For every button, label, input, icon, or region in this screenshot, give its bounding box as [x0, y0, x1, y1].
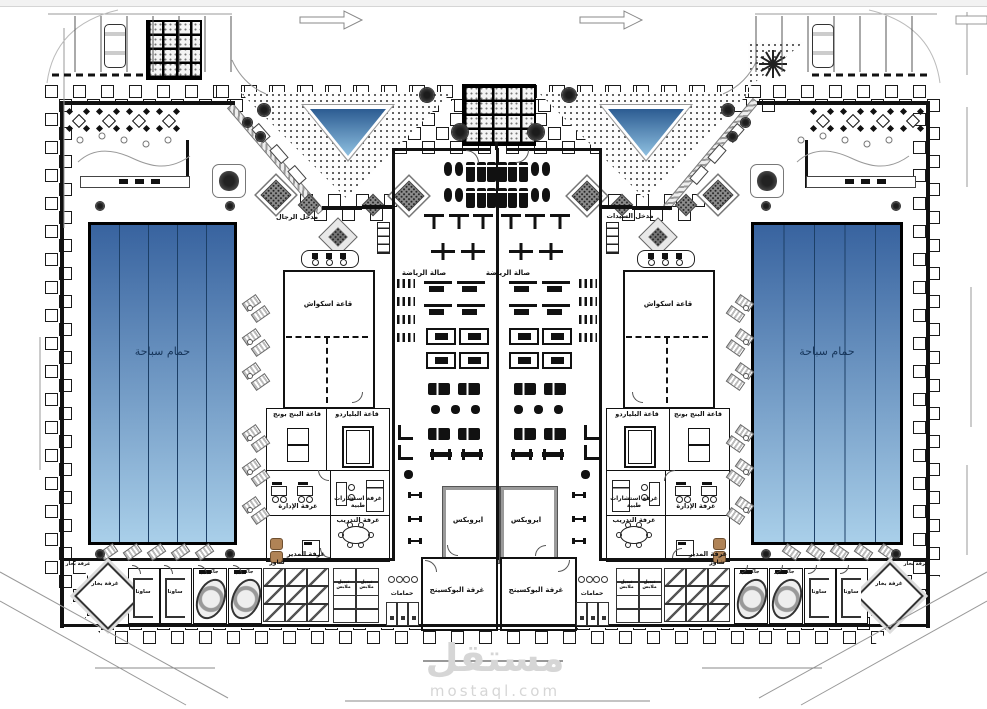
- gym-seat-icon: [471, 405, 480, 414]
- shower-stall-icon: [285, 604, 307, 622]
- paving-tile: [843, 631, 856, 644]
- barbell-icon: [511, 452, 533, 457]
- gym-machine-icon: [539, 243, 563, 260]
- tree-icon: [258, 104, 270, 116]
- squash-court-line: [326, 338, 328, 403]
- dumbbell-rack-icon: [397, 297, 415, 306]
- side-table-icon: [247, 339, 253, 345]
- paving-tile: [216, 85, 229, 98]
- gym-machine-icon: [398, 425, 413, 440]
- paving-tile: [857, 85, 870, 98]
- gym-machine-icon: [509, 243, 533, 260]
- locker-icon: [616, 595, 639, 609]
- shower-stall-icon: [307, 568, 329, 586]
- weight-machine-icon: [542, 352, 572, 369]
- gym-machine-icon: [431, 243, 455, 260]
- squash-court-line: [666, 338, 668, 403]
- sink-icon: [411, 576, 418, 583]
- sauna-bench-icon: [809, 578, 829, 618]
- men-gate-wall: [322, 206, 362, 210]
- gym-machine-icon: [501, 214, 521, 229]
- wall: [599, 148, 602, 560]
- paving-tile: [157, 85, 170, 98]
- side-table-icon: [247, 305, 253, 311]
- jacuzzi-label-2: جاكوزي: [229, 570, 259, 576]
- gym-machine-icon: [525, 214, 545, 229]
- sink-icon: [593, 576, 600, 583]
- jacuzzi-label-1: جاكوزي: [194, 570, 224, 576]
- paving-tile: [129, 85, 142, 98]
- training-right-label: غرفة التدريب: [607, 517, 661, 524]
- bar-counter-icon: [806, 176, 916, 188]
- side-table-icon: [743, 435, 749, 441]
- lockers-label-3: تبديل ملابس: [616, 580, 637, 590]
- paving-tile: [45, 365, 58, 378]
- paving-tile: [927, 631, 940, 644]
- armchair-icon: [713, 538, 726, 550]
- dumbbell-icon: [408, 516, 422, 522]
- road-arrow-icon: [580, 11, 642, 29]
- medical-right-label: غرفة استشارات طبية: [607, 496, 661, 510]
- squash-hall-right: [623, 270, 715, 409]
- gym-seat-icon: [534, 405, 543, 414]
- toilet-stall-icon: [408, 602, 419, 626]
- paving-tile: [436, 127, 449, 140]
- locker-icon: [616, 609, 639, 623]
- shower-stall-icon: [263, 568, 285, 586]
- shower-stall-icon: [263, 604, 285, 622]
- side-table-icon: [743, 339, 749, 345]
- paving-tile: [283, 631, 296, 644]
- paving-tile: [45, 421, 58, 434]
- paving-tile: [815, 631, 828, 644]
- sauna-label-1: ساونا: [129, 589, 157, 595]
- watermark-domain: mostaql.com: [405, 682, 585, 700]
- treadmill-icon: [498, 188, 507, 208]
- gym-seat-icon: [431, 405, 440, 414]
- weight-machine-icon: [509, 352, 539, 369]
- treadmill-icon: [477, 162, 486, 182]
- manager-left-label: غرفة المدير: [284, 551, 328, 558]
- paving-tile: [913, 309, 926, 322]
- shower-stall-icon: [708, 604, 730, 622]
- steam-left-label-2: غرفة بخار: [64, 562, 92, 568]
- paving-tile: [45, 253, 58, 266]
- cafe-table-icon: [872, 110, 892, 130]
- weight-machine-icon: [459, 328, 489, 345]
- medical-left-label: غرفة استشارات طبية: [331, 496, 385, 510]
- lockers-label-1: تبديل ملابس: [333, 580, 354, 590]
- paving-tile: [913, 225, 926, 238]
- paving-tile: [748, 85, 761, 98]
- shower-stall-icon: [686, 604, 708, 622]
- exercise-bike-icon: [542, 162, 550, 176]
- gym-left-label: صالة الرياضة: [384, 269, 464, 277]
- gym-machine-icon: [514, 383, 536, 395]
- shower-stall-icon: [664, 586, 686, 604]
- shrub-icon: [256, 132, 265, 141]
- dumbbell-icon: [408, 538, 422, 544]
- weight-machine-icon: [426, 352, 456, 369]
- pingpong-table-icon: [287, 428, 309, 462]
- paving-tile: [45, 477, 58, 490]
- sink-icon: [586, 576, 593, 583]
- cafe-table-icon: [812, 110, 832, 130]
- side-table-icon: [743, 469, 749, 475]
- monitor-icon: [702, 482, 712, 485]
- paving-tile: [913, 421, 926, 434]
- toilet-stall-icon: [576, 602, 587, 626]
- jacuzzi-label-4: جاكوزي: [770, 570, 800, 576]
- paving-tile: [913, 393, 926, 406]
- treadmill-icon: [466, 188, 475, 208]
- billiards-right-label: قاعة البلياردو: [607, 411, 667, 418]
- parking-pergola-icon: [146, 20, 202, 80]
- paving-tile: [591, 631, 604, 644]
- treadmill-icon: [519, 162, 528, 182]
- dumbbell-icon: [572, 516, 586, 522]
- wall: [599, 558, 930, 561]
- barbell-icon: [430, 452, 452, 457]
- wall: [60, 101, 64, 628]
- paving-tile: [199, 631, 212, 644]
- locker-icon: [356, 595, 379, 609]
- wall: [757, 101, 930, 105]
- side-table-icon: [743, 373, 749, 379]
- wall: [496, 148, 499, 560]
- pool-left-label: حمام سباحة: [90, 346, 235, 359]
- wall: [62, 558, 395, 561]
- watermark-logo: مستقل: [420, 636, 570, 680]
- pergola-icon: [462, 84, 536, 146]
- monitor-icon: [678, 542, 686, 545]
- boxing-left-label: غرفة البوكسينج: [422, 586, 492, 594]
- paving-tile: [87, 631, 100, 644]
- sauna-bench-icon: [841, 578, 861, 618]
- paving-tile: [45, 337, 58, 350]
- bench-press-icon: [542, 281, 570, 293]
- dumbbell-rack-icon: [397, 315, 415, 324]
- sauna-bench-icon: [133, 578, 153, 618]
- sink-icon: [388, 576, 395, 583]
- treadmill-icon: [466, 162, 475, 182]
- paving-tile: [899, 631, 912, 644]
- cafe-table-icon: [902, 110, 922, 130]
- tree-planter-icon: [750, 164, 784, 198]
- monitor-icon: [676, 482, 686, 485]
- chair-icon: [641, 484, 648, 491]
- locker-icon: [356, 609, 379, 623]
- cafe-table-icon: [842, 110, 862, 130]
- gym-seat-icon: [451, 405, 460, 414]
- bench-press-icon: [457, 304, 485, 316]
- paving-tile: [101, 85, 114, 98]
- potted-plant-icon: [892, 202, 900, 210]
- shower-stall-icon: [708, 568, 730, 586]
- meeting-table-icon: [342, 526, 370, 544]
- weight-machine-icon: [509, 328, 539, 345]
- bathrooms-right-label: حمامات: [575, 591, 609, 598]
- shrub-icon: [741, 118, 750, 127]
- monitor-icon: [298, 482, 308, 485]
- paving-tile: [45, 617, 58, 630]
- toilet-stall-icon: [598, 602, 609, 626]
- tree-icon: [452, 124, 468, 140]
- side-table-icon: [247, 469, 253, 475]
- treadmill-icon: [508, 162, 517, 182]
- paving-tile: [871, 631, 884, 644]
- gym-seat-icon: [404, 470, 413, 479]
- toilet-stall-icon: [386, 602, 397, 626]
- desk-icon: [297, 486, 313, 496]
- dumbbell-rack-icon: [579, 279, 597, 288]
- paving-tile: [171, 631, 184, 644]
- dumbbell-rack-icon: [579, 315, 597, 324]
- radiator-icon: [606, 222, 619, 254]
- wall: [392, 148, 490, 151]
- sauna-label-4: ساونا: [837, 589, 865, 595]
- wall: [392, 148, 395, 560]
- aerobics-left-label: ايروبكس: [444, 516, 492, 524]
- paving-tile: [395, 631, 408, 644]
- paving-tile: [59, 631, 72, 644]
- gym-machine-icon: [428, 428, 450, 440]
- desk-icon: [271, 486, 287, 496]
- parking-left: [48, 14, 232, 84]
- gym-seat-icon: [581, 470, 590, 479]
- sink-icon: [403, 576, 410, 583]
- wall: [62, 624, 930, 627]
- paving-tile: [45, 393, 58, 406]
- gym-machine-icon: [550, 214, 570, 229]
- steam-left-label: غرفة بخار: [85, 581, 125, 587]
- manager-right-label: غرفة المدير: [686, 551, 730, 558]
- women-entrance-label: مدخل السيدات: [604, 213, 656, 220]
- gym-machine-icon: [514, 428, 536, 440]
- swimming-pool-right: [751, 222, 903, 545]
- chair-icon: [348, 484, 355, 491]
- bar-counter-icon: [80, 176, 190, 188]
- gym-seat-icon: [554, 405, 563, 414]
- paving-tile: [255, 631, 268, 644]
- shrub-icon: [728, 132, 737, 141]
- cafe-table-icon: [68, 110, 88, 130]
- paving-tile: [45, 85, 58, 98]
- steam-right-label-2: غرفة بخار: [902, 562, 930, 568]
- side-table-icon: [247, 373, 253, 379]
- paving-tile: [647, 631, 660, 644]
- exercise-bike-icon: [444, 162, 452, 176]
- desk-icon: [701, 486, 717, 496]
- pingpong-table-icon: [688, 428, 710, 462]
- exercise-bike-icon: [531, 188, 539, 202]
- bathrooms-left-label: حمامات: [385, 591, 419, 598]
- shower-right-label: شاور: [702, 560, 732, 567]
- side-table-icon: [247, 507, 253, 513]
- paving-tile: [328, 194, 341, 207]
- radiator-icon: [377, 222, 390, 254]
- dumbbell-icon: [572, 538, 586, 544]
- car-icon: [812, 24, 834, 68]
- armchair-icon: [270, 538, 283, 550]
- dumbbell-rack-icon: [397, 333, 415, 342]
- weight-machine-icon: [542, 328, 572, 345]
- exercise-bike-icon: [455, 162, 463, 176]
- side-table-icon: [743, 507, 749, 513]
- bench-press-icon: [542, 304, 570, 316]
- gym-machine-icon: [449, 214, 469, 229]
- paving-tile: [619, 631, 632, 644]
- tree-icon: [420, 88, 434, 102]
- boxing-right-label: غرفة البوكسينج: [501, 586, 571, 594]
- potted-plant-icon: [892, 550, 900, 558]
- wall: [599, 205, 632, 209]
- shower-stall-icon: [263, 586, 285, 604]
- men-entrance-label: مدخل الرجال: [274, 214, 320, 221]
- tree-icon: [562, 88, 576, 102]
- paving-tile: [185, 85, 198, 98]
- potted-plant-icon: [96, 550, 104, 558]
- toilet-stall-icon: [397, 602, 408, 626]
- paving-tile: [913, 141, 926, 154]
- gym-machine-icon: [461, 243, 485, 260]
- road-arrow-icon: [300, 11, 362, 29]
- dumbbell-icon: [408, 492, 422, 498]
- paving-tile: [73, 85, 86, 98]
- paving-tile: [227, 631, 240, 644]
- potted-plant-icon: [226, 202, 234, 210]
- barbell-icon: [461, 452, 483, 457]
- dumbbell-rack-icon: [579, 333, 597, 342]
- paving-tile: [45, 113, 58, 126]
- locker-icon: [333, 595, 356, 609]
- training-left-label: غرفة التدريب: [331, 517, 385, 524]
- treadmill-icon: [498, 162, 507, 182]
- gym-machine-icon: [424, 214, 444, 229]
- bench-press-icon: [509, 304, 537, 316]
- paving-tile: [913, 449, 926, 462]
- side-table-icon: [743, 305, 749, 311]
- treadmill-icon: [519, 188, 528, 208]
- paving-tile: [829, 85, 842, 98]
- locker-icon: [639, 595, 662, 609]
- gym-machine-icon: [458, 428, 480, 440]
- gym-machine-icon: [584, 425, 599, 440]
- wall: [362, 205, 395, 209]
- treadmill-icon: [477, 188, 486, 208]
- lockers-label-2: تبديل ملابس: [356, 580, 377, 590]
- gym-machine-icon: [544, 383, 566, 395]
- paving-tile: [703, 631, 716, 644]
- paving-tile: [885, 85, 898, 98]
- paving-tile: [45, 505, 58, 518]
- floor-plan-drawing: حمام سباحة حمام سباحة صالة الرياضة صالة …: [0, 0, 987, 709]
- toilet-stall-icon: [587, 602, 598, 626]
- potted-plant-icon: [762, 202, 770, 210]
- exercise-bike-icon: [444, 188, 452, 202]
- gym-seat-icon: [514, 405, 523, 414]
- admin-left-label: غرفة الإدارة: [269, 503, 327, 510]
- wall: [60, 101, 235, 105]
- shower-stall-icon: [686, 586, 708, 604]
- paving-tile: [675, 631, 688, 644]
- paving-tile: [45, 169, 58, 182]
- billiards-left-label: قاعة البلياردو: [327, 411, 387, 418]
- paving-tile: [45, 449, 58, 462]
- gym-machine-icon: [428, 383, 450, 395]
- paving-tile: [759, 631, 772, 644]
- tree-planter-icon: [212, 164, 246, 198]
- wall: [926, 101, 930, 628]
- potted-plant-icon: [226, 550, 234, 558]
- lockers-label-4: تبديل ملابس: [639, 580, 660, 590]
- locker-icon: [639, 609, 662, 623]
- spectator-bench-icon: [301, 250, 359, 268]
- paving-tile: [45, 225, 58, 238]
- jacuzzi-label-3: جاكوزي: [735, 570, 765, 576]
- paving-tile: [913, 477, 926, 490]
- paving-tile: [731, 631, 744, 644]
- treadmill-icon: [508, 188, 517, 208]
- gym-machine-icon: [584, 445, 599, 460]
- sink-icon: [601, 576, 608, 583]
- dumbbell-rack-icon: [579, 297, 597, 306]
- treadmill-icon: [487, 162, 496, 182]
- women-gate-wall: [632, 206, 672, 210]
- squash-left-label: قاعة اسكواش: [286, 300, 370, 308]
- paving-tile: [801, 85, 814, 98]
- steam-right-label: غرفة بخار: [869, 581, 909, 587]
- potted-plant-icon: [762, 550, 770, 558]
- page-top-strip: [0, 0, 987, 7]
- barbell-icon: [542, 452, 564, 457]
- dumbbell-rack-icon: [397, 279, 415, 288]
- tree-icon: [528, 124, 544, 140]
- bench-press-icon: [424, 304, 452, 316]
- sauna-bench-icon: [165, 578, 185, 618]
- exercise-bike-icon: [455, 188, 463, 202]
- dumbbell-icon: [572, 492, 586, 498]
- billiards-table-icon: [624, 426, 656, 468]
- gym-machine-icon: [473, 214, 493, 229]
- pool-right-label: حمام سباحة: [753, 346, 901, 359]
- shower-stall-icon: [285, 586, 307, 604]
- swimming-pool-left: [88, 222, 237, 545]
- side-table-icon: [247, 435, 253, 441]
- cafe-table-icon: [128, 110, 148, 130]
- tree-icon: [722, 104, 734, 116]
- bench-press-icon: [424, 281, 452, 293]
- paving-tile: [45, 197, 58, 210]
- sauna-label-3: ساونا: [805, 589, 833, 595]
- paving-tile: [339, 631, 352, 644]
- paving-tile: [45, 281, 58, 294]
- sink-icon: [578, 576, 585, 583]
- meeting-table-icon: [620, 526, 648, 544]
- shower-stall-icon: [307, 604, 329, 622]
- paving-tile: [45, 533, 58, 546]
- shower-stall-icon: [686, 568, 708, 586]
- shower-stall-icon: [708, 586, 730, 604]
- bench-press-icon: [509, 281, 537, 293]
- paving-tile: [548, 127, 561, 140]
- monitor-icon: [304, 542, 312, 545]
- shower-stall-icon: [307, 586, 329, 604]
- cafe-table-icon: [158, 110, 178, 130]
- gym-right-label: صالة الرياضة: [468, 269, 548, 277]
- shower-stall-icon: [285, 568, 307, 586]
- paving-tile: [913, 281, 926, 294]
